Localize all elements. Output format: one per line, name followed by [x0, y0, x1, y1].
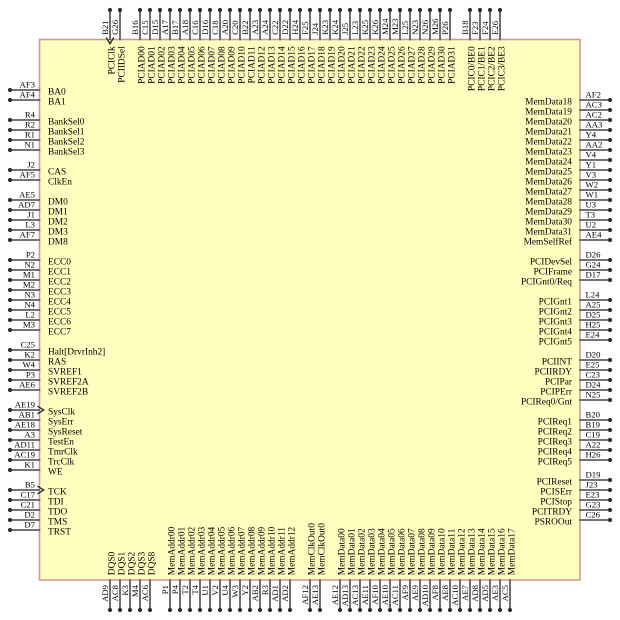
svg-text:PCIAD27: PCIAD27 — [408, 46, 418, 84]
svg-text:AF4: AF4 — [20, 90, 36, 100]
svg-text:MemAddr05: MemAddr05 — [218, 526, 228, 575]
svg-text:BA0: BA0 — [48, 88, 66, 98]
svg-text:PCIAD26: PCIAD26 — [398, 46, 408, 84]
svg-text:PCIAD24: PCIAD24 — [378, 46, 388, 84]
svg-text:N25: N25 — [586, 390, 601, 400]
svg-text:AD13: AD13 — [340, 585, 350, 606]
svg-text:D19: D19 — [586, 470, 601, 480]
svg-text:PCIINT: PCIINT — [542, 358, 572, 368]
svg-text:AC10: AC10 — [450, 584, 460, 605]
svg-text:J23: J23 — [586, 480, 598, 490]
svg-text:TMS: TMS — [48, 518, 67, 528]
svg-text:F23: F23 — [470, 21, 480, 35]
svg-text:MemAddr06: MemAddr06 — [228, 526, 238, 575]
svg-text:PCIClk: PCIClk — [108, 46, 118, 74]
svg-text:A25: A25 — [586, 300, 601, 310]
svg-text:DQS0: DQS0 — [108, 551, 118, 575]
svg-text:AF12: AF12 — [300, 585, 310, 605]
svg-text:AA3: AA3 — [586, 120, 603, 130]
svg-text:PCIAD02: PCIAD02 — [158, 46, 168, 84]
svg-text:B5: B5 — [25, 480, 35, 490]
svg-text:PCIReq4: PCIReq4 — [538, 448, 573, 458]
svg-text:B16: B16 — [130, 20, 140, 35]
svg-text:PCIAD13: PCIAD13 — [268, 46, 278, 84]
svg-text:A22: A22 — [586, 440, 601, 450]
svg-text:PCIReset: PCIReset — [537, 478, 573, 488]
svg-text:P3: P3 — [26, 370, 35, 380]
svg-text:MemData19: MemData19 — [525, 108, 572, 118]
svg-text:C16: C16 — [190, 20, 200, 35]
svg-text:PCIAD08: PCIAD08 — [218, 46, 228, 84]
svg-text:W3: W3 — [230, 585, 240, 598]
svg-text:MemAddr11: MemAddr11 — [278, 527, 288, 575]
svg-text:M2: M2 — [23, 280, 35, 290]
svg-text:PCIAD06: PCIAD06 — [198, 46, 208, 84]
svg-text:AA2: AA2 — [586, 140, 603, 150]
svg-text:C22: C22 — [270, 20, 280, 34]
svg-text:E23: E23 — [586, 490, 600, 500]
svg-text:AD10: AD10 — [420, 584, 430, 606]
svg-text:MemData27: MemData27 — [525, 188, 572, 198]
svg-text:MemData15: MemData15 — [488, 528, 498, 575]
svg-text:PCIC0/BE0: PCIC0/BE0 — [468, 46, 478, 91]
svg-text:N3: N3 — [24, 290, 35, 300]
svg-text:AF9: AF9 — [400, 585, 410, 600]
svg-text:PCIAD01: PCIAD01 — [148, 46, 158, 84]
svg-text:TestEn: TestEn — [48, 438, 74, 448]
svg-text:G26: G26 — [110, 19, 120, 35]
svg-text:D25: D25 — [586, 310, 601, 320]
svg-text:AD11: AD11 — [14, 440, 35, 450]
svg-text:AE19: AE19 — [15, 400, 35, 410]
svg-text:AE13: AE13 — [310, 585, 320, 605]
svg-text:PCIAD17: PCIAD17 — [308, 46, 318, 84]
svg-text:B22: B22 — [240, 20, 250, 34]
svg-text:R1: R1 — [25, 130, 35, 140]
svg-text:U2: U2 — [586, 220, 597, 230]
svg-text:P4: P4 — [170, 584, 180, 594]
svg-text:D17: D17 — [586, 270, 602, 280]
svg-text:MemData01: MemData01 — [348, 528, 358, 575]
svg-text:AB1: AB1 — [19, 410, 35, 420]
svg-text:MemAddr04: MemAddr04 — [208, 526, 218, 575]
svg-text:AD7: AD7 — [18, 200, 36, 210]
svg-text:B19: B19 — [586, 420, 600, 430]
svg-text:BankSel3: BankSel3 — [48, 148, 85, 158]
svg-text:DQS1: DQS1 — [118, 551, 128, 575]
svg-text:D7: D7 — [24, 520, 35, 530]
svg-text:PCIPar: PCIPar — [545, 378, 573, 388]
svg-text:AF7: AF7 — [20, 230, 36, 240]
svg-text:V3: V3 — [586, 170, 597, 180]
svg-text:F24: F24 — [480, 21, 490, 35]
svg-text:AE7: AE7 — [460, 584, 470, 601]
svg-text:MemAddr12: MemAddr12 — [288, 526, 298, 575]
svg-text:PCIGnt2: PCIGnt2 — [539, 308, 573, 318]
svg-text:K2: K2 — [24, 350, 35, 360]
svg-text:AC2: AC2 — [586, 110, 602, 120]
svg-text:AC8: AC8 — [110, 584, 120, 601]
svg-text:MemData24: MemData24 — [525, 158, 572, 168]
svg-text:TDI: TDI — [48, 498, 64, 508]
svg-text:BankSel1: BankSel1 — [48, 128, 85, 138]
svg-text:D22: D22 — [280, 20, 290, 35]
svg-text:PSROOut: PSROOut — [534, 518, 572, 528]
svg-text:PCIGnt5: PCIGnt5 — [539, 338, 573, 348]
svg-text:TRST: TRST — [48, 528, 71, 538]
svg-text:V2: V2 — [210, 585, 220, 596]
svg-text:M24: M24 — [380, 18, 390, 35]
svg-text:C23: C23 — [586, 370, 600, 380]
svg-text:A18: A18 — [180, 19, 190, 35]
svg-text:M3: M3 — [23, 320, 35, 330]
svg-text:DQS3: DQS3 — [138, 551, 148, 575]
svg-text:MemAddr07: MemAddr07 — [238, 526, 248, 575]
svg-text:MemData31: MemData31 — [525, 228, 572, 238]
svg-text:K3: K3 — [120, 585, 130, 596]
svg-text:MemData04: MemData04 — [378, 528, 388, 575]
svg-text:PCIReq1: PCIReq1 — [538, 418, 573, 428]
svg-text:DM8: DM8 — [48, 238, 68, 248]
svg-text:ClkEn: ClkEn — [48, 178, 72, 188]
svg-text:MemData20: MemData20 — [525, 118, 572, 128]
svg-text:M23: M23 — [390, 18, 400, 34]
svg-text:U4: U4 — [220, 584, 230, 595]
svg-text:ECC5: ECC5 — [48, 308, 71, 318]
svg-text:MemData21: MemData21 — [525, 128, 572, 138]
svg-text:AF10: AF10 — [370, 584, 380, 604]
svg-text:B18: B18 — [460, 20, 470, 35]
svg-text:MemData11: MemData11 — [448, 528, 458, 575]
svg-text:PCIReq0/Gnt: PCIReq0/Gnt — [521, 398, 572, 408]
svg-text:MemData00: MemData00 — [338, 528, 348, 575]
svg-text:N2: N2 — [24, 260, 35, 270]
svg-text:PCIAD05: PCIAD05 — [188, 46, 198, 84]
svg-text:MemData23: MemData23 — [525, 148, 572, 158]
svg-text:PCIPErr: PCIPErr — [540, 388, 573, 398]
svg-text:PCIAD12: PCIAD12 — [258, 46, 268, 84]
svg-text:PCIFrame: PCIFrame — [533, 268, 572, 278]
svg-text:Y2: Y2 — [240, 585, 250, 596]
svg-text:SVREF2A: SVREF2A — [48, 378, 89, 388]
svg-text:RAS: RAS — [48, 358, 66, 368]
svg-text:AE9: AE9 — [410, 585, 420, 601]
svg-text:MemAddr03: MemAddr03 — [198, 526, 208, 575]
svg-text:SVREF1: SVREF1 — [48, 368, 82, 378]
svg-text:K26: K26 — [370, 19, 380, 35]
svg-text:PCIAD16: PCIAD16 — [298, 46, 308, 84]
svg-text:PCIAD23: PCIAD23 — [368, 46, 378, 84]
svg-text:PCIAD18: PCIAD18 — [318, 46, 328, 84]
svg-text:C20: C20 — [230, 20, 240, 35]
svg-text:M26: M26 — [430, 18, 440, 35]
svg-text:PCIGnt0/Req: PCIGnt0/Req — [521, 278, 572, 288]
svg-text:J2: J2 — [27, 160, 35, 170]
svg-text:W2: W2 — [586, 180, 599, 190]
svg-text:PCIDevSel: PCIDevSel — [530, 258, 573, 268]
svg-text:MemData16: MemData16 — [498, 528, 508, 575]
svg-text:MemAddr02: MemAddr02 — [188, 526, 198, 575]
svg-text:TDO: TDO — [48, 508, 67, 518]
svg-text:N26: N26 — [420, 19, 430, 35]
svg-text:MemAddr01: MemAddr01 — [178, 526, 188, 575]
svg-text:MemData17: MemData17 — [508, 528, 518, 575]
svg-text:PCIAD19: PCIAD19 — [328, 46, 338, 84]
svg-text:L23: L23 — [350, 21, 360, 35]
svg-text:F25: F25 — [300, 21, 310, 35]
svg-text:TrcClk: TrcClk — [48, 458, 75, 468]
svg-text:D20: D20 — [586, 350, 602, 360]
svg-text:V4: V4 — [586, 150, 597, 160]
svg-text:PCIC1/BE1: PCIC1/BE1 — [478, 46, 488, 91]
svg-text:PCIAD22: PCIAD22 — [358, 46, 368, 84]
svg-text:L3: L3 — [25, 220, 35, 230]
svg-text:CAS: CAS — [48, 168, 66, 178]
svg-text:D24: D24 — [586, 380, 602, 390]
svg-text:SysReset: SysReset — [48, 428, 83, 438]
svg-text:U3: U3 — [586, 200, 597, 210]
svg-text:AE3: AE3 — [490, 585, 500, 601]
svg-text:A20: A20 — [220, 19, 230, 35]
svg-text:PCIAD28: PCIAD28 — [418, 46, 428, 84]
svg-text:W1: W1 — [586, 190, 599, 200]
svg-text:AD5: AD5 — [480, 585, 490, 602]
svg-text:MemData22: MemData22 — [525, 138, 572, 148]
svg-text:PCIAD31: PCIAD31 — [448, 46, 458, 84]
svg-text:SVREF2B: SVREF2B — [48, 388, 88, 398]
svg-text:E26: E26 — [490, 20, 500, 35]
svg-text:AE10: AE10 — [380, 584, 390, 605]
svg-text:MemData08: MemData08 — [418, 528, 428, 575]
svg-text:L24: L24 — [586, 290, 601, 300]
svg-text:AB2: AB2 — [250, 585, 260, 601]
svg-text:PCIReq5: PCIReq5 — [538, 458, 573, 468]
svg-text:N23: N23 — [410, 20, 420, 35]
svg-text:J24: J24 — [310, 22, 320, 35]
svg-text:PCIGnt3: PCIGnt3 — [539, 318, 573, 328]
svg-text:MemData14: MemData14 — [478, 528, 488, 575]
svg-text:MemData06: MemData06 — [398, 528, 408, 575]
svg-text:PCIReq3: PCIReq3 — [538, 438, 573, 448]
svg-text:PCIIDSel: PCIIDSel — [118, 46, 128, 83]
svg-text:MemData09: MemData09 — [428, 528, 438, 575]
svg-text:D26: D26 — [586, 250, 602, 260]
svg-text:K24: K24 — [330, 19, 340, 35]
svg-text:MemData12: MemData12 — [458, 528, 468, 575]
svg-text:AD9: AD9 — [100, 585, 110, 602]
svg-text:PCIAD15: PCIAD15 — [288, 46, 298, 84]
svg-text:U1: U1 — [200, 585, 210, 596]
svg-text:AC19: AC19 — [14, 450, 35, 460]
svg-text:ECC7: ECC7 — [48, 328, 71, 338]
svg-text:H26: H26 — [586, 450, 602, 460]
svg-text:W4: W4 — [22, 360, 35, 370]
svg-text:D2: D2 — [24, 510, 35, 520]
svg-text:DM1: DM1 — [48, 208, 68, 218]
svg-text:R4: R4 — [25, 110, 36, 120]
svg-text:PCIAD03: PCIAD03 — [168, 46, 178, 84]
svg-text:AE6: AE6 — [19, 380, 36, 390]
svg-text:PCIAD11: PCIAD11 — [248, 46, 258, 83]
svg-text:AE4: AE4 — [586, 230, 603, 240]
svg-text:PCIAD09: PCIAD09 — [228, 46, 238, 84]
svg-text:PCIGnt1: PCIGnt1 — [539, 298, 573, 308]
svg-text:ECC6: ECC6 — [48, 318, 71, 328]
svg-text:C26: C26 — [586, 510, 601, 520]
svg-text:J25: J25 — [340, 23, 350, 35]
svg-text:PCIAD25: PCIAD25 — [388, 46, 398, 84]
svg-text:MemData02: MemData02 — [358, 528, 368, 575]
svg-text:MemData26: MemData26 — [525, 178, 572, 188]
svg-text:P26: P26 — [440, 21, 450, 35]
svg-text:PCIAD10: PCIAD10 — [238, 46, 248, 84]
svg-text:G24: G24 — [586, 260, 602, 270]
svg-text:MemAddr10: MemAddr10 — [268, 526, 278, 575]
svg-text:C18: C18 — [210, 20, 220, 35]
svg-text:AF3: AF3 — [20, 80, 35, 90]
svg-text:B17: B17 — [170, 20, 180, 35]
svg-text:C17: C17 — [21, 490, 36, 500]
svg-text:M1: M1 — [23, 270, 35, 280]
svg-text:TCK: TCK — [48, 488, 67, 498]
svg-text:C15: C15 — [140, 20, 150, 34]
svg-text:BA1: BA1 — [48, 98, 66, 108]
svg-text:AC5: AC5 — [500, 585, 510, 601]
svg-text:AE11: AE11 — [360, 585, 370, 605]
svg-text:H25: H25 — [586, 320, 601, 330]
svg-text:AF5: AF5 — [20, 170, 35, 180]
svg-text:TmrClk: TmrClk — [48, 448, 78, 458]
svg-text:MemData03: MemData03 — [368, 528, 378, 575]
svg-text:DM2: DM2 — [48, 218, 68, 228]
svg-text:N1: N1 — [24, 140, 35, 150]
svg-text:MemClkOut0: MemClkOut0 — [318, 523, 328, 575]
svg-text:ECC1: ECC1 — [48, 268, 71, 278]
svg-text:L25: L25 — [400, 21, 410, 35]
svg-text:MemClkOut0: MemClkOut0 — [308, 523, 318, 575]
svg-text:P1: P1 — [160, 585, 170, 594]
svg-text:PCIAD00: PCIAD00 — [138, 46, 148, 84]
svg-text:BankSel0: BankSel0 — [48, 118, 85, 128]
svg-text:MemData28: MemData28 — [525, 198, 572, 208]
svg-text:MemData07: MemData07 — [408, 528, 418, 575]
svg-text:Y4: Y4 — [586, 130, 597, 140]
svg-text:AC6: AC6 — [140, 584, 150, 601]
svg-text:DM0: DM0 — [48, 198, 68, 208]
svg-text:MemData18: MemData18 — [525, 98, 572, 108]
svg-text:ECC2: ECC2 — [48, 278, 71, 288]
svg-text:PCISErr: PCISErr — [540, 488, 573, 498]
svg-text:B21: B21 — [100, 20, 110, 34]
svg-text:AE5: AE5 — [19, 190, 35, 200]
svg-text:BankSel2: BankSel2 — [48, 138, 85, 148]
svg-text:H24: H24 — [290, 19, 300, 35]
svg-text:MemData30: MemData30 — [525, 218, 572, 228]
svg-text:R2: R2 — [25, 120, 35, 130]
svg-text:ECC3: ECC3 — [48, 288, 71, 298]
svg-text:AC13: AC13 — [350, 585, 360, 606]
svg-text:T4: T4 — [190, 584, 200, 594]
svg-text:C21: C21 — [21, 500, 35, 510]
svg-text:MemData05: MemData05 — [388, 528, 398, 575]
svg-text:AE18: AE18 — [15, 420, 36, 430]
svg-text:Halt[DrvrInh2]: Halt[DrvrInh2] — [48, 348, 105, 358]
svg-text:MemSelfRef: MemSelfRef — [524, 237, 573, 248]
svg-text:PCIAD04: PCIAD04 — [178, 46, 188, 84]
svg-text:C19: C19 — [586, 430, 600, 440]
svg-text:PCIAD20: PCIAD20 — [338, 46, 348, 84]
svg-text:AC3: AC3 — [586, 100, 602, 110]
svg-text:MemData29: MemData29 — [525, 208, 572, 218]
svg-text:K23: K23 — [320, 20, 330, 35]
svg-text:AF8: AF8 — [430, 584, 440, 600]
svg-text:DM3: DM3 — [48, 228, 68, 238]
svg-text:MemData10: MemData10 — [438, 528, 448, 575]
svg-text:N4: N4 — [24, 300, 35, 310]
svg-text:PCIReq2: PCIReq2 — [538, 428, 573, 438]
svg-text:AE12: AE12 — [330, 585, 340, 605]
svg-text:MemAddr08: MemAddr08 — [248, 526, 258, 575]
svg-text:P2: P2 — [26, 250, 35, 260]
svg-text:M4: M4 — [130, 584, 140, 597]
svg-text:PCIC2/BE2: PCIC2/BE2 — [488, 46, 498, 91]
svg-text:A23: A23 — [250, 20, 260, 35]
svg-text:ECC4: ECC4 — [48, 298, 71, 308]
svg-text:ECC0: ECC0 — [48, 258, 71, 268]
svg-text:MemData13: MemData13 — [468, 528, 478, 575]
svg-text:MemData25: MemData25 — [525, 168, 572, 178]
svg-text:E25: E25 — [586, 360, 600, 370]
svg-text:K25: K25 — [360, 20, 370, 35]
svg-text:AF2: AF2 — [586, 90, 601, 100]
svg-text:B20: B20 — [586, 410, 601, 420]
svg-text:T3: T3 — [586, 210, 596, 220]
svg-text:SysErr: SysErr — [48, 418, 74, 428]
svg-text:K1: K1 — [24, 460, 35, 470]
svg-text:MemAddr00: MemAddr00 — [168, 526, 178, 575]
svg-text:AD8: AD8 — [470, 584, 480, 602]
svg-text:G23: G23 — [586, 500, 601, 510]
svg-text:D16: D16 — [200, 19, 210, 35]
svg-text:C25: C25 — [21, 340, 35, 350]
svg-text:E24: E24 — [586, 330, 601, 340]
svg-text:PCIAD29: PCIAD29 — [428, 46, 438, 84]
svg-text:A17: A17 — [160, 19, 170, 35]
svg-text:DQS8: DQS8 — [148, 551, 158, 575]
svg-text:PCITRDY: PCITRDY — [532, 508, 572, 518]
svg-text:T2: T2 — [180, 585, 190, 595]
svg-text:AD2: AD2 — [280, 585, 290, 602]
svg-text:A3: A3 — [24, 430, 35, 440]
svg-text:Y1: Y1 — [586, 160, 597, 170]
svg-text:L2: L2 — [25, 310, 35, 320]
svg-text:PCIGnt4: PCIGnt4 — [539, 328, 573, 338]
svg-text:WE: WE — [48, 468, 63, 478]
svg-text:R3: R3 — [260, 585, 270, 595]
svg-text:J1: J1 — [27, 210, 35, 220]
svg-text:PCIAD07: PCIAD07 — [208, 46, 218, 84]
svg-text:PCIAD21: PCIAD21 — [348, 46, 358, 84]
svg-text:SysClk: SysClk — [48, 408, 75, 418]
svg-text:AE8: AE8 — [440, 584, 450, 601]
svg-text:PCIIRDY: PCIIRDY — [534, 368, 572, 378]
svg-text:PCIAD30: PCIAD30 — [438, 46, 448, 84]
svg-text:PCIStop: PCIStop — [540, 498, 572, 508]
svg-text:AC11: AC11 — [390, 585, 400, 605]
svg-text:DQS2: DQS2 — [128, 551, 138, 575]
svg-text:D15: D15 — [150, 20, 160, 35]
svg-text:PCIAD14: PCIAD14 — [278, 46, 288, 84]
